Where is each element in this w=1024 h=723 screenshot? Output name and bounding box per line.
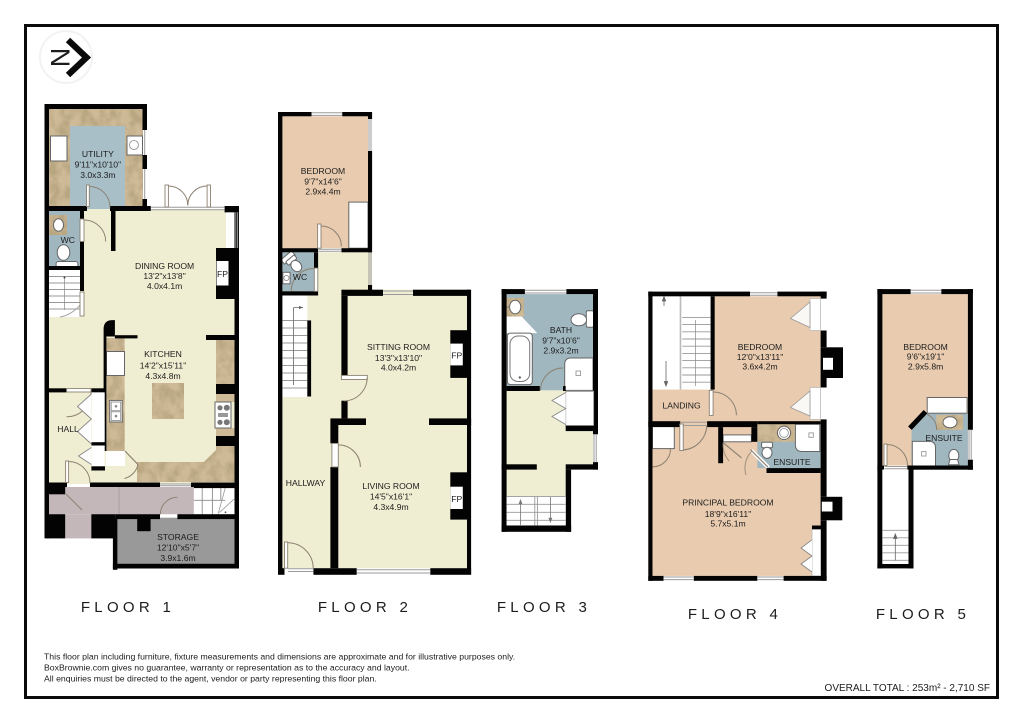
- svg-text:13'3"x13'10": 13'3"x13'10": [375, 353, 422, 363]
- svg-text:12'10"x5'7": 12'10"x5'7": [157, 543, 199, 553]
- svg-text:BEDROOM: BEDROOM: [738, 342, 782, 352]
- svg-text:KITCHEN: KITCHEN: [144, 349, 182, 359]
- svg-text:4.0x4.1m: 4.0x4.1m: [147, 281, 182, 291]
- svg-text:5.7x5.1m: 5.7x5.1m: [710, 519, 745, 529]
- svg-text:2.9x3.2m: 2.9x3.2m: [543, 346, 578, 356]
- svg-text:14'2"x15'11": 14'2"x15'11": [140, 361, 187, 371]
- svg-text:12'0"x13'11": 12'0"x13'11": [737, 352, 784, 362]
- svg-text:3.9x1.6m: 3.9x1.6m: [160, 553, 195, 563]
- svg-text:LIVING ROOM: LIVING ROOM: [362, 481, 419, 491]
- svg-text:FLOOR 2: FLOOR 2: [318, 599, 412, 616]
- svg-text:9'7"x10'6": 9'7"x10'6": [542, 336, 580, 346]
- svg-text:FLOOR 1: FLOOR 1: [81, 599, 175, 616]
- svg-text:13'2"x13'8": 13'2"x13'8": [143, 271, 185, 281]
- svg-text:ENSUITE: ENSUITE: [925, 433, 963, 443]
- svg-text:BEDROOM: BEDROOM: [903, 342, 947, 352]
- svg-text:WC: WC: [61, 235, 75, 245]
- svg-text:OVERALL TOTAL : 253m² - 2,710: OVERALL TOTAL : 253m² - 2,710 SF: [825, 683, 990, 694]
- svg-text:9'11"x10'10": 9'11"x10'10": [75, 160, 122, 170]
- svg-text:UTILITY: UTILITY: [82, 149, 114, 159]
- svg-text:FLOOR 4: FLOOR 4: [688, 606, 782, 623]
- svg-text:DINING ROOM: DINING ROOM: [135, 261, 194, 271]
- svg-text:3.0x3.3m: 3.0x3.3m: [80, 170, 115, 180]
- svg-text:All enquiries must be directed: All enquiries must be directed to the ag…: [44, 674, 377, 684]
- svg-text:18'9"x16'11": 18'9"x16'11": [705, 509, 752, 519]
- svg-text:BEDROOM: BEDROOM: [301, 166, 345, 176]
- svg-text:ENSUITE: ENSUITE: [773, 457, 811, 467]
- svg-text:PRINCIPAL BEDROOM: PRINCIPAL BEDROOM: [682, 498, 773, 508]
- svg-text:4.0x4.2m: 4.0x4.2m: [381, 363, 416, 373]
- svg-text:BATH: BATH: [550, 325, 572, 335]
- svg-text:9'6"x19'1": 9'6"x19'1": [907, 352, 945, 362]
- svg-text:14'5"x16'1": 14'5"x16'1": [370, 492, 412, 502]
- svg-text:3.6x4.2m: 3.6x4.2m: [742, 362, 777, 372]
- svg-text:BoxBrownie.com gives no guaran: BoxBrownie.com gives no guarantee, warra…: [44, 663, 410, 673]
- svg-text:STORAGE: STORAGE: [157, 532, 199, 542]
- svg-text:HALL: HALL: [57, 424, 79, 434]
- svg-text:FP: FP: [451, 351, 462, 361]
- svg-text:N: N: [45, 48, 75, 68]
- svg-text:FP: FP: [217, 269, 228, 279]
- svg-text:FLOOR 3: FLOOR 3: [497, 599, 591, 616]
- svg-text:2.9x5.8m: 2.9x5.8m: [908, 362, 943, 372]
- svg-text:SITTING ROOM: SITTING ROOM: [367, 342, 430, 352]
- svg-text:HALLWAY: HALLWAY: [286, 478, 326, 488]
- svg-text:FP: FP: [451, 494, 462, 504]
- svg-text:This floor plan including furn: This floor plan including furniture, fix…: [44, 652, 515, 662]
- svg-text:4.3x4.9m: 4.3x4.9m: [373, 502, 408, 512]
- svg-text:9'7"x14'6": 9'7"x14'6": [304, 176, 342, 186]
- svg-text:WC: WC: [293, 272, 307, 282]
- svg-text:4.3x4.8m: 4.3x4.8m: [145, 371, 180, 381]
- svg-text:2.9x4.4m: 2.9x4.4m: [305, 186, 340, 196]
- svg-text:FLOOR 5: FLOOR 5: [876, 606, 970, 623]
- svg-text:LANDING: LANDING: [662, 401, 701, 411]
